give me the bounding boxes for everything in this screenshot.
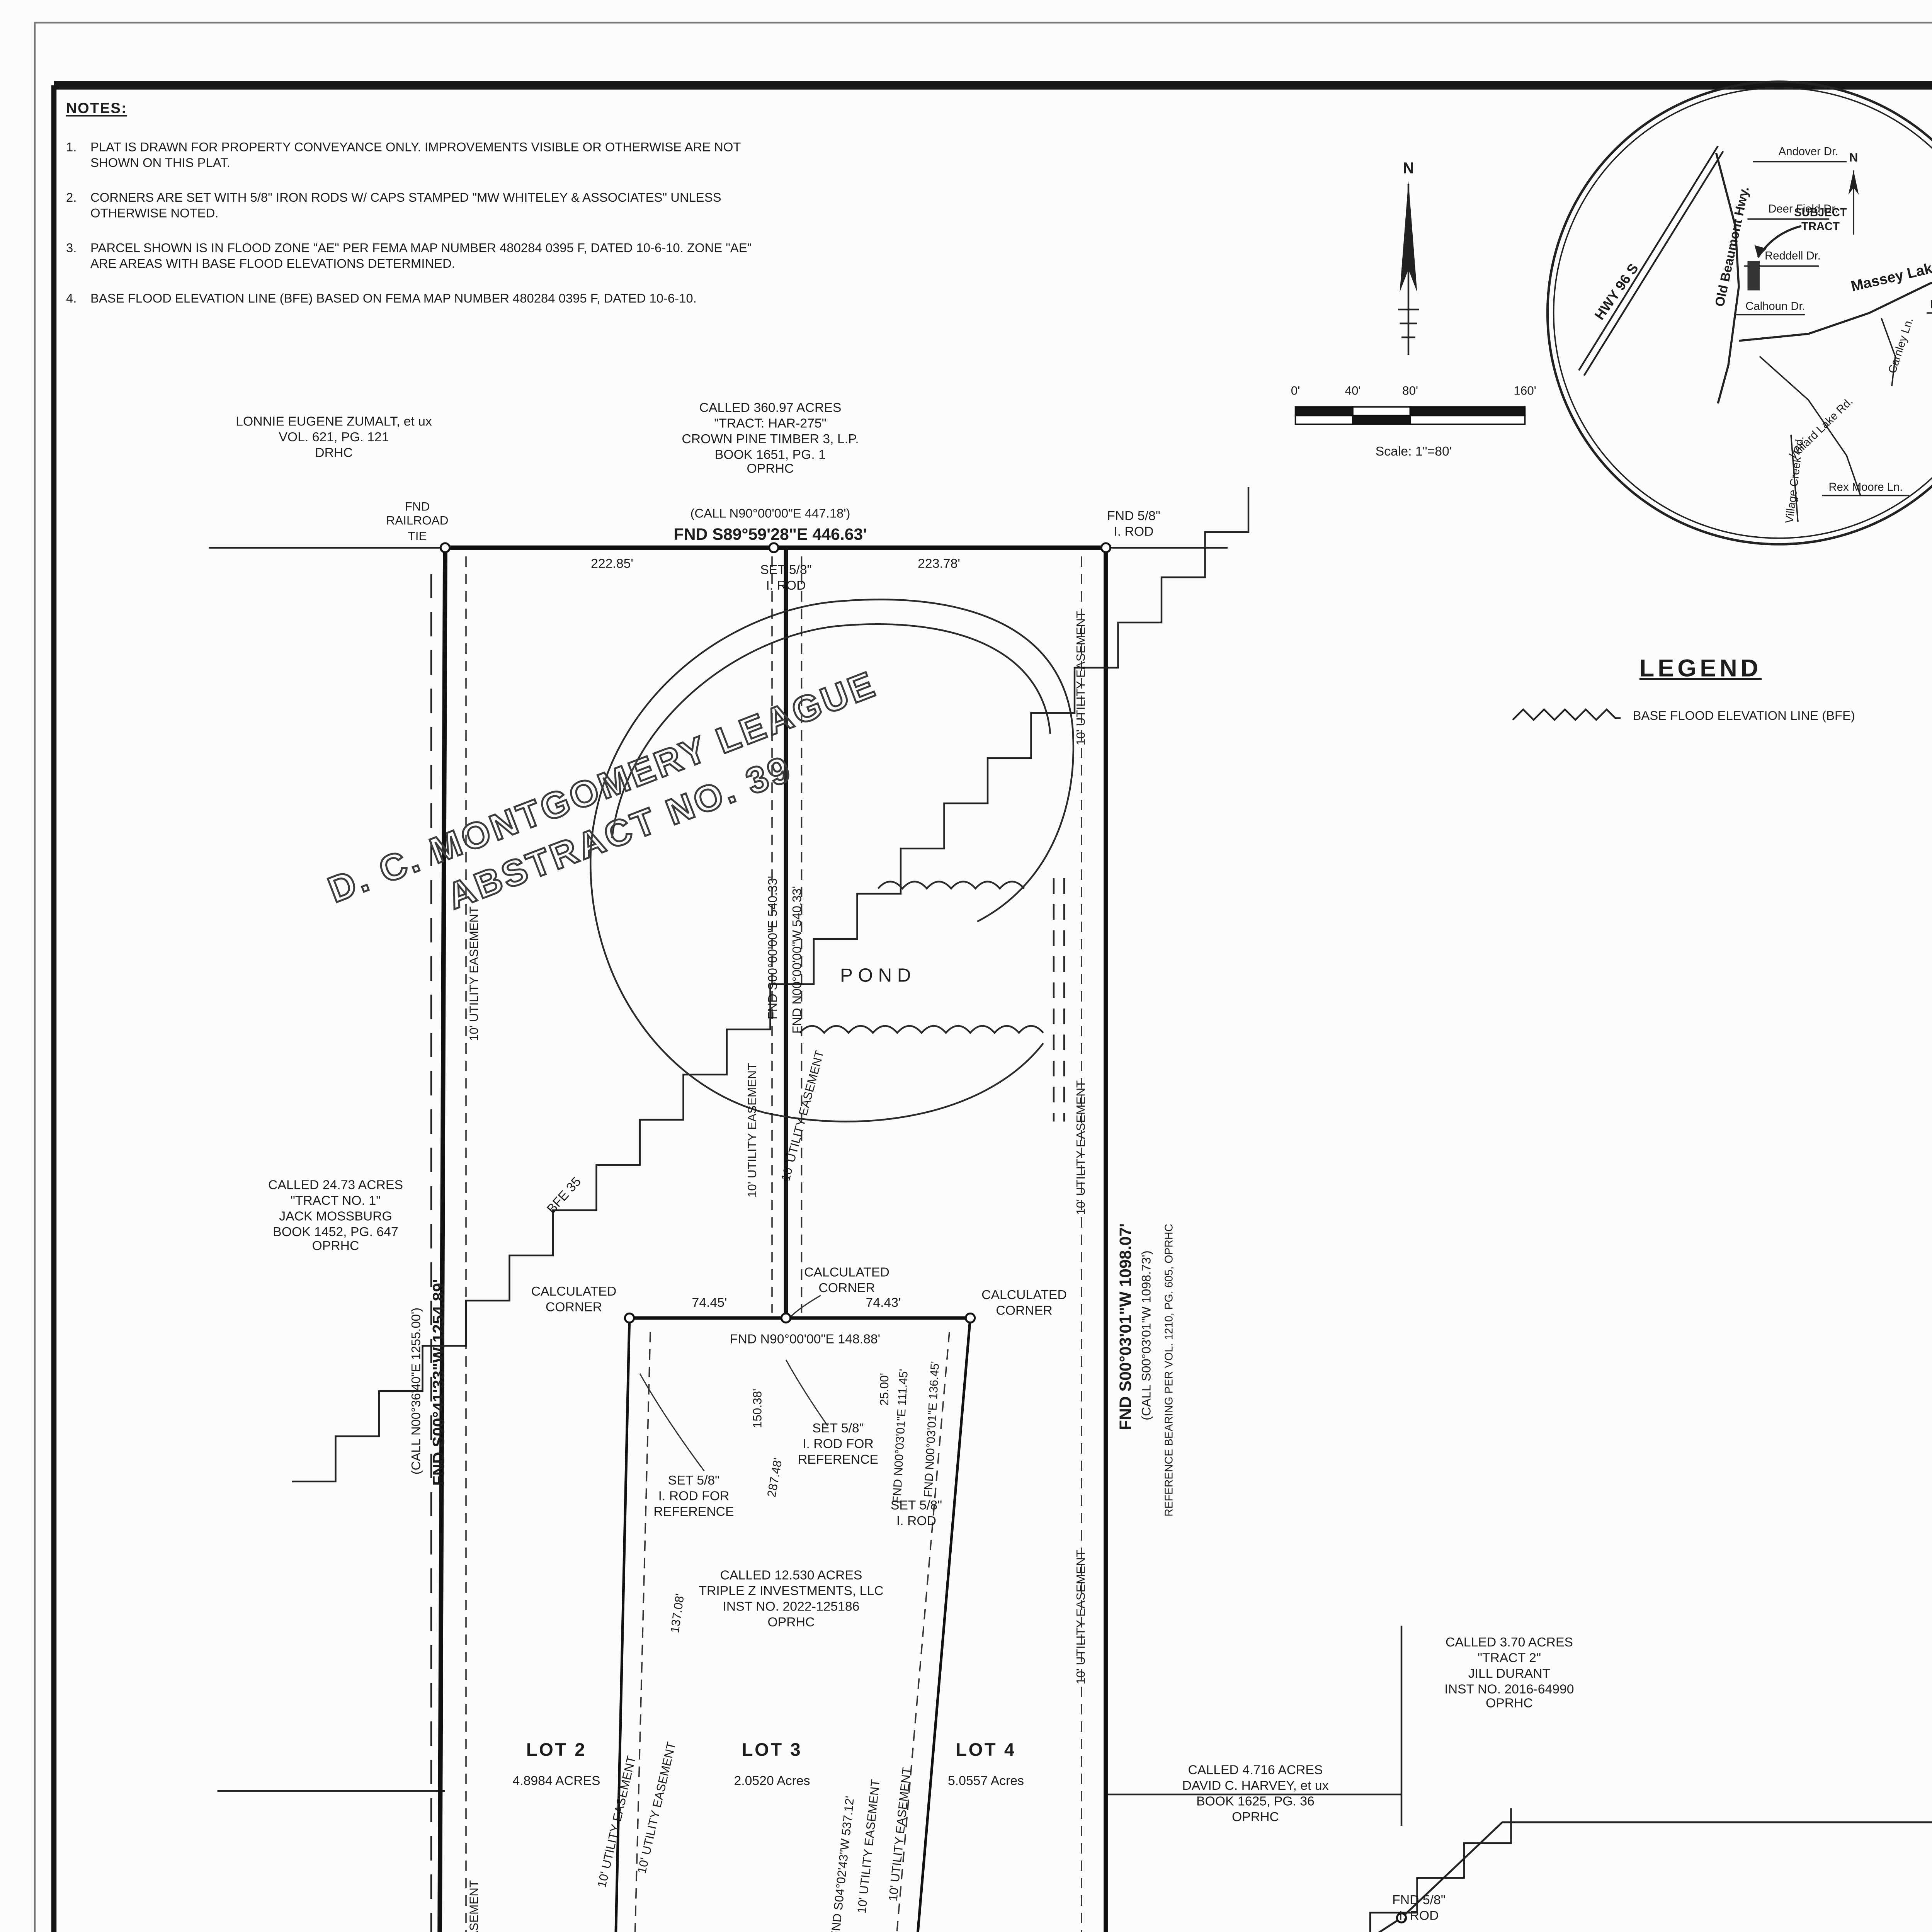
leader-lines xyxy=(395,1295,1139,1932)
vicinity-map xyxy=(1548,82,1932,544)
note-item: 4.BASE FLOOD ELEVATION LINE (BFE) BASED … xyxy=(66,292,758,307)
lot3-lot4-line xyxy=(890,1318,970,1932)
note-item: 3.PARCEL SHOWN IS IN FLOOD ZONE "AE" PER… xyxy=(66,241,758,272)
scale-tick: 0' xyxy=(1291,386,1300,398)
corner-monuments xyxy=(434,543,1406,1932)
scalebar-labels: 0' 40' 80' 160' Scale: 1"=80' xyxy=(1283,386,1544,459)
lot2-lot3-line xyxy=(574,1318,629,1932)
scale-tick: 80' xyxy=(1402,386,1418,398)
note-item: 2.CORNERS ARE SET WITH 5/8" IRON RODS W/… xyxy=(66,192,758,223)
notes-block: NOTES: 1.PLAT IS DRAWN FOR PROPERTY CONV… xyxy=(66,99,758,327)
note-item: 1.PLAT IS DRAWN FOR PROPERTY CONVEYANCE … xyxy=(66,141,758,172)
notes-title: NOTES: xyxy=(66,99,758,117)
bfe-zigzag-icon xyxy=(1509,702,1621,727)
scale-caption: Scale: 1"=80' xyxy=(1283,444,1544,459)
scale-tick: 160' xyxy=(1514,386,1536,398)
vicinity-subject-rect xyxy=(1747,261,1760,290)
bfe-lines xyxy=(292,487,1511,1932)
legend-bfe-label: BASE FLOOD ELEVATION LINE (BFE) xyxy=(1633,707,1855,723)
north-arrow xyxy=(1398,181,1419,355)
legend: LEGEND BASE FLOOD ELEVATION LINE (BFE) xyxy=(1509,654,1927,727)
legend-title: LEGEND xyxy=(1561,654,1840,682)
plat-sheet: D. C. MONTGOMERY LEAGUEABSTRACT NO. 39 N… xyxy=(0,0,1932,1932)
scale-tick: 40' xyxy=(1345,386,1361,398)
